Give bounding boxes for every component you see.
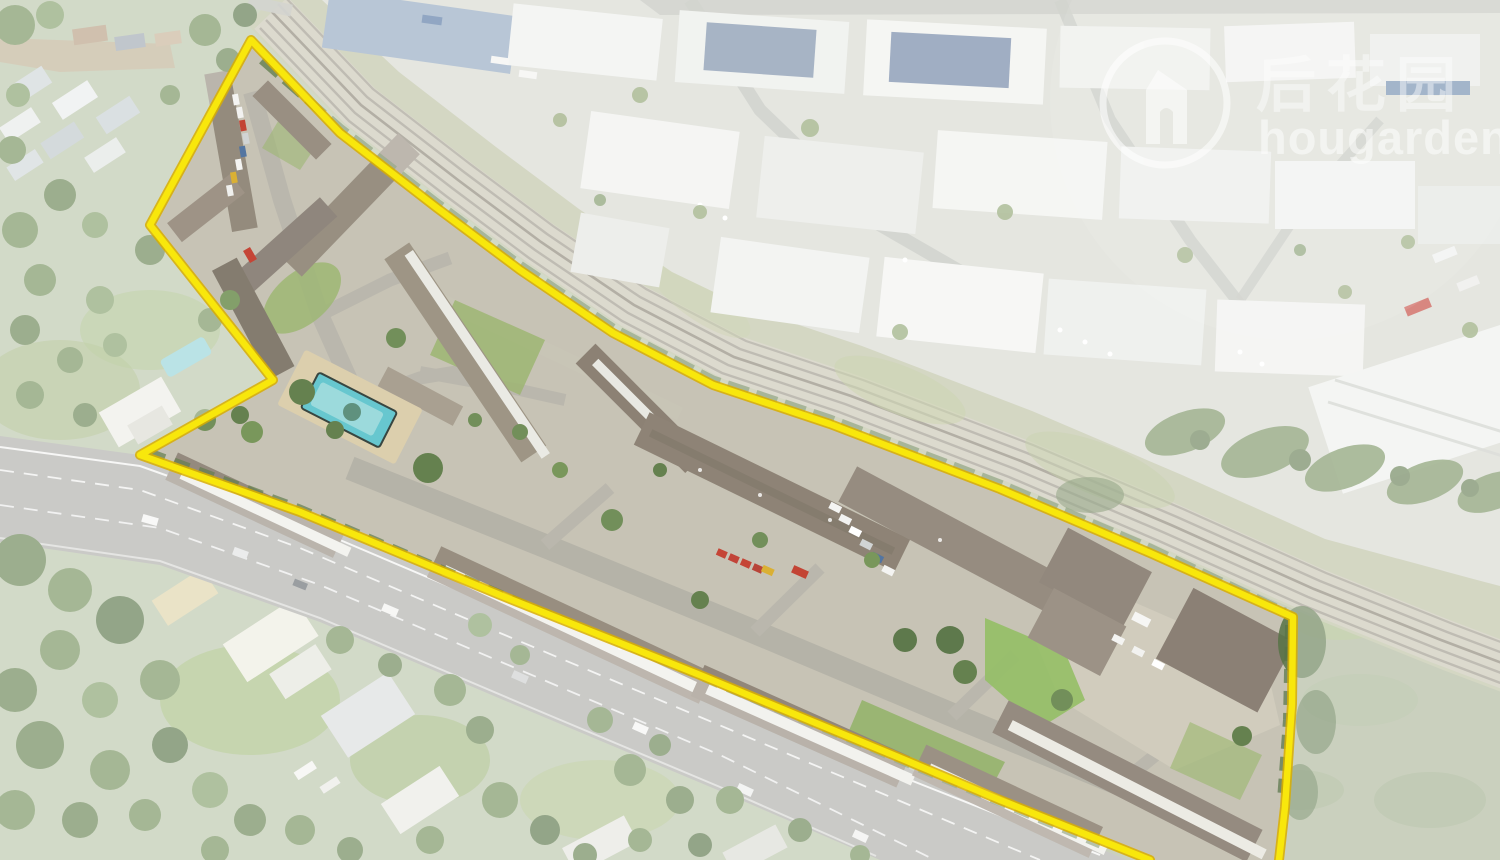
aerial-property-photo: 后花园 hougarden [0,0,1500,860]
watermark-brand-text: hougarden [1258,111,1500,164]
watermark-cjk-text: 后花园 [1256,52,1466,119]
